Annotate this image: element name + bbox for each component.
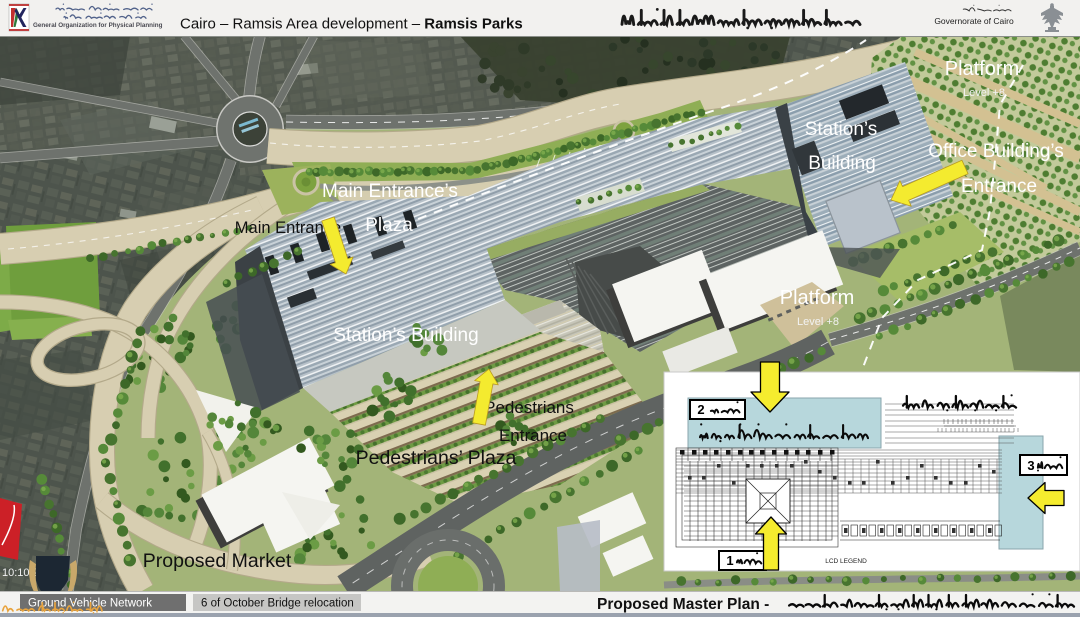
svg-text:LCD LEGEND: LCD LEGEND: [825, 558, 867, 565]
svg-text:Plaza: Plaza: [365, 215, 413, 236]
svg-text:Platform: Platform: [945, 58, 1019, 80]
svg-text:Level +8: Level +8: [797, 316, 839, 328]
svg-text:6 of October Bridge relocation: 6 of October Bridge relocation: [201, 598, 354, 610]
svg-text:Proposed Market: Proposed Market: [143, 550, 292, 572]
svg-text:General Organization for Physi: General Organization for Physical Planni…: [33, 22, 163, 29]
svg-text:Office Building’s: Office Building’s: [928, 141, 1064, 162]
svg-text:Platform: Platform: [780, 287, 854, 309]
svg-text:Level +8: Level +8: [963, 87, 1005, 99]
svg-text:Entrance: Entrance: [499, 426, 567, 445]
svg-text:Pedestrians: Pedestrians: [484, 398, 574, 417]
svg-text:Entrance: Entrance: [961, 176, 1037, 197]
svg-text:Governorate of Cairo: Governorate of Cairo: [934, 16, 1014, 26]
svg-text:1: 1: [726, 553, 733, 568]
svg-text:3: 3: [1027, 458, 1034, 473]
svg-text:Building: Building: [808, 153, 876, 174]
svg-text:2: 2: [697, 402, 704, 417]
svg-text:Station’s Building: Station’s Building: [333, 325, 478, 346]
svg-text:Station’s: Station’s: [805, 119, 878, 140]
svg-text:Main Entrance’s: Main Entrance’s: [322, 181, 458, 202]
svg-text:Pedestrians’ Plaza: Pedestrians’ Plaza: [356, 447, 517, 469]
svg-text:Proposed Master Plan -: Proposed Master Plan -: [597, 596, 769, 613]
svg-text:Cairo – Ramsis Area developmen: Cairo – Ramsis Area development – Ramsis…: [180, 16, 523, 33]
